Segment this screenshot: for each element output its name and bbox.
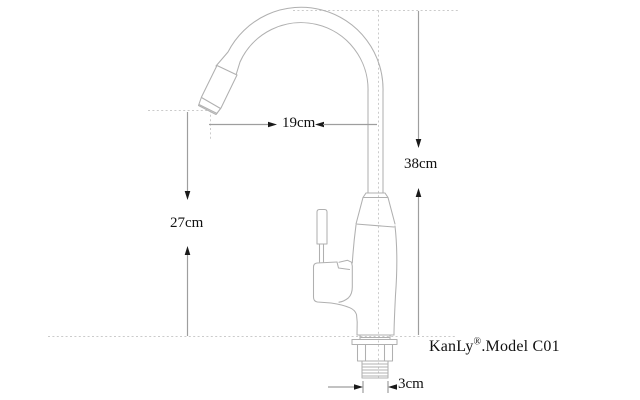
faucet-dimension-diagram: 19cm 38cm 27cm 3cm KanLy®.Model C01: [0, 0, 640, 400]
dim-3cm-arrow-left-icon: [388, 384, 397, 390]
lever-stem: [320, 244, 324, 262]
body-right-edge: [394, 226, 397, 335]
lever-stick: [317, 210, 327, 245]
dim-3cm-arrow-right-icon: [354, 384, 363, 390]
base-collar: [360, 335, 390, 340]
dim-19cm-arrow-left-icon: [315, 122, 324, 128]
dimension-label-inlet-width: 3cm: [398, 377, 424, 392]
base-threads: [362, 361, 388, 378]
dim-27cm-arrow-down-icon: [185, 191, 191, 200]
brand-label: KanLy®.Model C01: [429, 338, 560, 355]
dim-19cm-arrow-right-icon: [268, 122, 277, 128]
base-hex-nut: [358, 345, 393, 362]
dim-38cm-arrow-down-icon: [416, 139, 422, 148]
gooseneck-outer: [216, 7, 383, 193]
handle-housing: [314, 262, 358, 335]
dimension-label-spout-height: 27cm: [170, 216, 203, 231]
dimension-label-overall-height: 38cm: [404, 157, 437, 172]
body-cone: [356, 198, 395, 228]
faucet-outline: [199, 7, 398, 378]
dim-3cm-ext-ticks: [363, 381, 388, 393]
dimension-label-spout-reach: 19cm: [282, 116, 315, 131]
gooseneck-inner: [236, 23, 368, 193]
dim-27cm-arrow-up-icon: [185, 246, 191, 255]
brand-name: KanLy: [429, 338, 474, 355]
pipe-cap: [363, 193, 388, 198]
dim-38cm-arrow-up-icon: [416, 188, 422, 197]
brand-model: .Model C01: [481, 338, 559, 355]
body-left-edge: [352, 225, 356, 263]
base-flange: [352, 340, 397, 345]
guide-lines: [48, 11, 460, 380]
